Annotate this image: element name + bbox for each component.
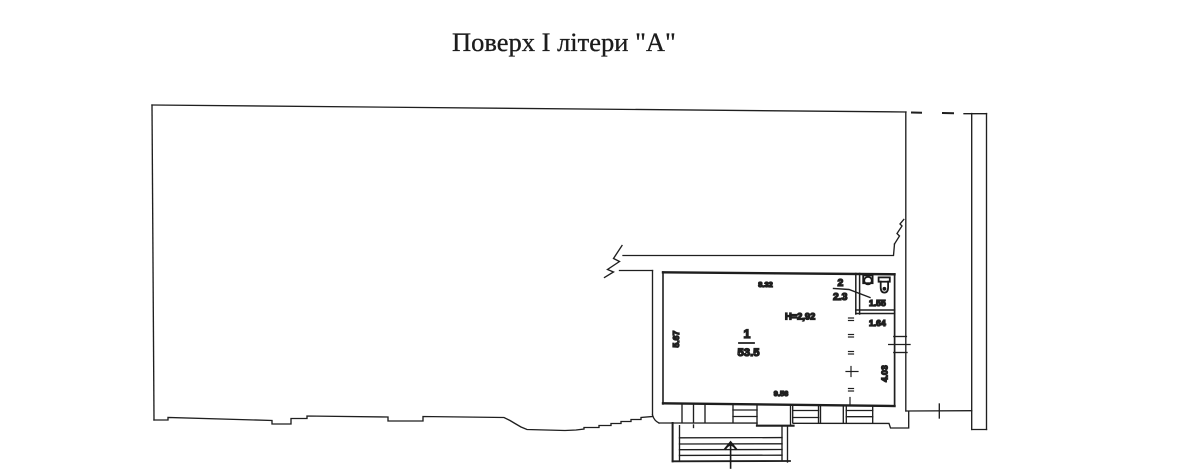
svg-text:H=2,92: H=2,92 bbox=[785, 312, 815, 322]
svg-text:5.67: 5.67 bbox=[671, 331, 681, 348]
svg-text:9.56: 9.56 bbox=[774, 389, 788, 398]
svg-text:1: 1 bbox=[744, 327, 751, 341]
svg-text:1.55: 1.55 bbox=[869, 298, 886, 308]
svg-text:Поверх І літери "А": Поверх І літери "А" bbox=[452, 27, 676, 57]
svg-text:1.64: 1.64 bbox=[869, 318, 886, 328]
svg-text:53.5: 53.5 bbox=[738, 347, 760, 359]
svg-text:2: 2 bbox=[838, 278, 844, 289]
svg-text:8.32: 8.32 bbox=[758, 280, 772, 289]
svg-text:4.03: 4.03 bbox=[880, 365, 890, 382]
svg-text:2.3: 2.3 bbox=[833, 292, 848, 303]
